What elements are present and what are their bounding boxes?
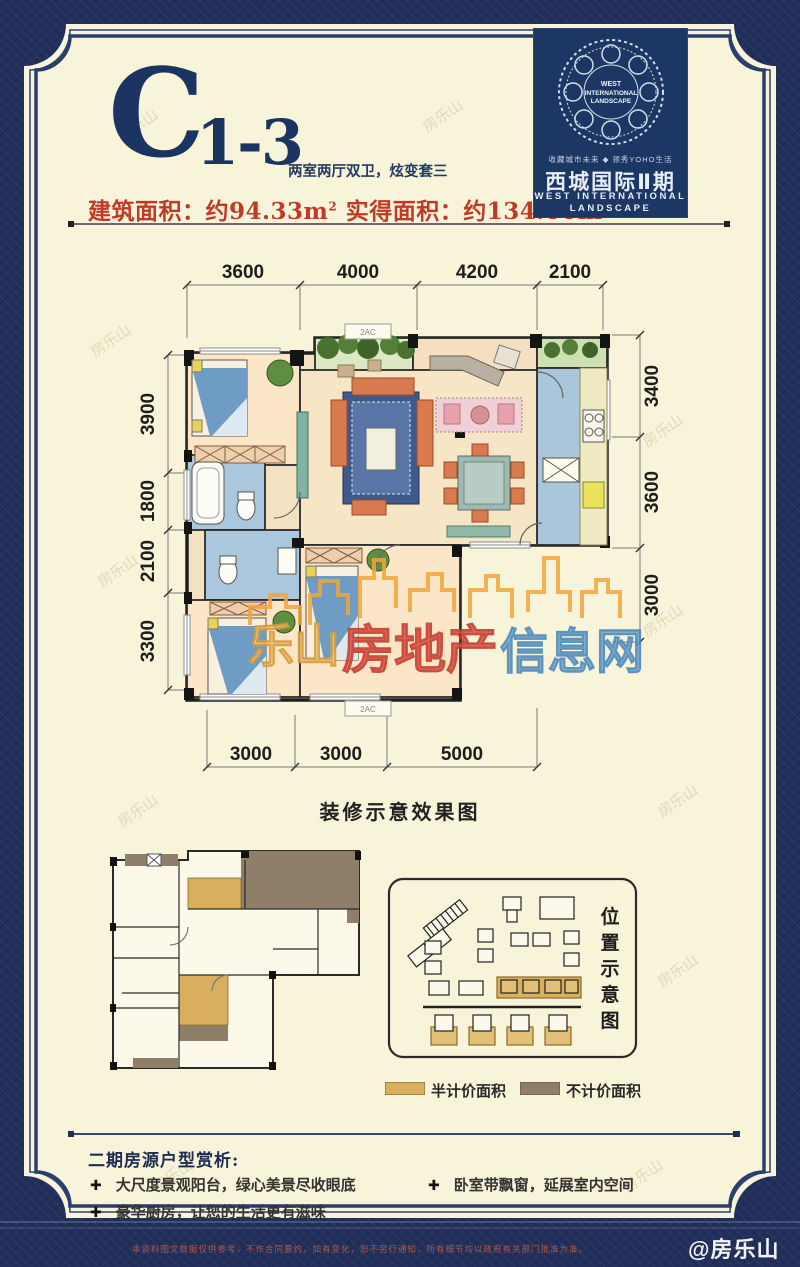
- unit-tagline: 两室两厅双卫，炫变套三: [288, 160, 448, 181]
- unit-code-sub: 1-3: [196, 112, 302, 174]
- svg-text:2AC: 2AC: [360, 328, 376, 337]
- svg-text:3000: 3000: [642, 574, 663, 616]
- poster-page: 房乐山 房乐山 房乐山 房乐山 房乐山 房乐山 房乐山 房乐山 房乐山 房乐山 …: [0, 0, 800, 1267]
- unit-code-main: C: [108, 52, 205, 174]
- no-price-swatch: [520, 1082, 560, 1095]
- analysis-bullet-1: ✚大尺度景观阳台，绿心美景尽收眼底: [90, 1174, 356, 1195]
- svg-text:图: 图: [600, 1010, 619, 1032]
- svg-text:3300: 3300: [138, 620, 159, 662]
- svg-text:5000: 5000: [441, 744, 483, 765]
- svg-text:LANDSCAPE: LANDSCAPE: [591, 98, 632, 105]
- half-price-label: 半计价面积: [431, 1080, 506, 1101]
- svg-text:INTERNATIONAL: INTERNATIONAL: [585, 90, 638, 97]
- logo-en-2: LANDSCAPE: [533, 203, 688, 214]
- analysis-divider: [68, 1128, 740, 1140]
- svg-text:3600: 3600: [222, 262, 264, 283]
- svg-text:置: 置: [600, 932, 619, 954]
- area1-sup: 2: [328, 199, 337, 213]
- bullet-text: 大尺度景观阳台，绿心美景尽收眼底: [116, 1177, 356, 1194]
- svg-text:房地产: 房地产: [342, 622, 498, 680]
- svg-text:信息网: 信息网: [500, 626, 644, 679]
- analysis-bullet-2: ✚豪华厨房，让您的生活更有滋味: [90, 1201, 326, 1222]
- bullet-icon: ✚: [90, 1204, 102, 1220]
- bullet-text: 豪华厨房，让您的生活更有滋味: [116, 1204, 326, 1221]
- svg-text:意: 意: [600, 983, 619, 1006]
- svg-text:1800: 1800: [138, 480, 159, 522]
- footer-disclaimer: 本资料图文数据仅供参考，不作合同要约，如有变化，恕不另行通知，所有细节均以政府有…: [0, 1243, 720, 1255]
- area-outline-plan: [100, 848, 380, 1083]
- svg-text:3600: 3600: [642, 471, 663, 513]
- basin: [278, 548, 296, 574]
- svg-text:3000: 3000: [320, 744, 362, 765]
- svg-text:示: 示: [600, 959, 619, 980]
- area-legend: 半计价面积 不计价面积: [385, 1080, 685, 1100]
- location-map: 位 置 示 意 图: [385, 875, 640, 1075]
- svg-text:3900: 3900: [138, 393, 159, 435]
- floor-plan: 3600 4000 4200 2100 3900 1800 2100 3300 …: [100, 260, 720, 790]
- tv-console: [297, 412, 308, 498]
- analysis-bullet-3: ✚卧室带飘窗，延展室内空间: [428, 1174, 634, 1195]
- footer-credit: @房乐山: [688, 1232, 779, 1264]
- plan-caption: 装修示意效果图: [0, 796, 800, 825]
- svg-text:3000: 3000: [230, 744, 272, 765]
- sideboard: [447, 526, 510, 537]
- location-title: 位 置 示 意 图: [600, 905, 619, 1032]
- half-price-swatch: [385, 1082, 425, 1095]
- medallion-icon: WEST INTERNATIONAL LANDSCAPE: [555, 36, 667, 148]
- svg-text:4000: 4000: [337, 262, 379, 283]
- logo-slogan: 收藏城市未来 ◆ 领秀YOHO生活: [533, 154, 688, 165]
- svg-text:4200: 4200: [456, 262, 498, 283]
- logo-en-1: WEST INTERNATIONAL: [533, 191, 688, 202]
- svg-text:位: 位: [600, 905, 619, 928]
- bullet-icon: ✚: [428, 1177, 440, 1193]
- no-price-label: 不计价面积: [566, 1080, 641, 1101]
- plant: [267, 360, 293, 386]
- svg-text:2100: 2100: [138, 540, 159, 582]
- analysis-heading: 二期房源户型赏析:: [88, 1146, 239, 1171]
- bed-master: [192, 360, 247, 436]
- sofa-set: [331, 378, 433, 515]
- site-buildings: [408, 897, 581, 1045]
- wardrobe: [195, 446, 285, 463]
- header-divider: [68, 218, 733, 230]
- svg-text:2AC: 2AC: [360, 705, 376, 714]
- bullet-icon: ✚: [90, 1177, 102, 1193]
- brand-logo-box: WEST INTERNATIONAL LANDSCAPE 收藏城市未来 ◆ 领秀…: [533, 28, 688, 218]
- svg-text:3400: 3400: [642, 365, 663, 407]
- svg-text:乐山: 乐山: [248, 620, 340, 672]
- svg-text:2100: 2100: [549, 262, 591, 283]
- svg-text:WEST: WEST: [601, 81, 622, 88]
- bullet-text: 卧室带飘窗，延展室内空间: [454, 1177, 634, 1194]
